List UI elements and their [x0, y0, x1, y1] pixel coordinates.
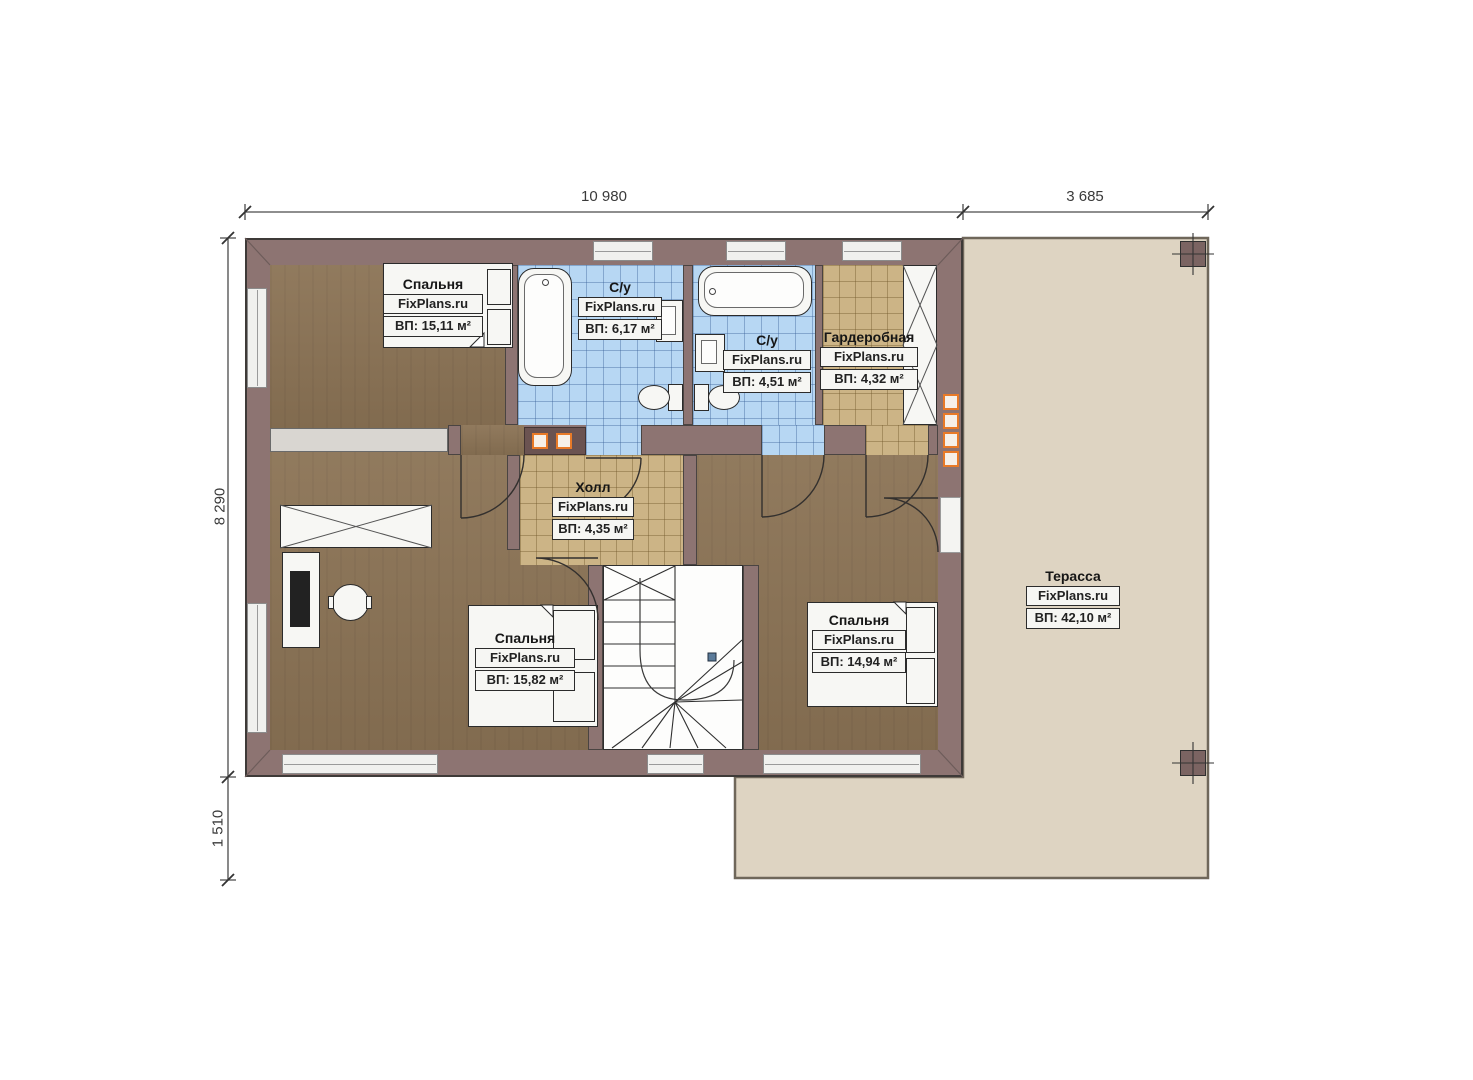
chair-armrest	[328, 596, 334, 609]
wall	[824, 425, 866, 455]
wall-light	[270, 428, 448, 452]
room-name: Гардеробная	[820, 329, 918, 345]
area-box: ВП: 15,82 м²	[475, 670, 575, 690]
wall	[641, 425, 762, 455]
terrace-column	[1180, 241, 1206, 267]
chair	[332, 584, 369, 621]
room-name: Спальня	[812, 612, 906, 628]
window	[282, 754, 438, 774]
glass-block	[943, 394, 959, 410]
brand-box: FixPlans.ru	[552, 497, 634, 517]
pillow	[906, 607, 935, 653]
brand-box: FixPlans.ru	[723, 350, 811, 370]
terrace-column	[1180, 750, 1206, 776]
area-box: ВП: 4,51 м²	[723, 372, 811, 392]
wall	[683, 265, 693, 425]
area-box: ВП: 14,94 м²	[812, 652, 906, 672]
brand-box: FixPlans.ru	[578, 297, 662, 317]
glass-block	[943, 432, 959, 448]
room-label-bathroom-large: С/у FixPlans.ru ВП: 6,17 м²	[578, 279, 662, 340]
brand-box: FixPlans.ru	[1026, 586, 1120, 606]
dimension-left-lower: 1 510	[210, 779, 227, 879]
pillow	[906, 658, 935, 704]
window	[593, 241, 653, 261]
wall	[448, 425, 461, 455]
room-label-bedroom-top-left: Спальня FixPlans.ru ВП: 15,11 м²	[383, 276, 483, 337]
room-name: Спальня	[475, 630, 575, 646]
room-label-bedroom-bottom-left: Спальня FixPlans.ru ВП: 15,82 м²	[475, 630, 575, 691]
glass-block	[943, 413, 959, 429]
wall	[928, 425, 938, 455]
toilet-tank	[694, 384, 709, 411]
sink	[695, 334, 725, 372]
room-label-bathroom-small: С/у FixPlans.ru ВП: 4,51 м²	[723, 332, 811, 393]
room-label-hall: Холл FixPlans.ru ВП: 4,35 м²	[552, 479, 634, 540]
pillow	[487, 309, 511, 345]
room-label-wardrobe: Гардеробная FixPlans.ru ВП: 4,32 м²	[820, 329, 918, 390]
window	[247, 603, 267, 733]
room-name: С/у	[723, 332, 811, 348]
area-box: ВП: 15,11 м²	[383, 316, 483, 336]
window	[842, 241, 902, 261]
brand-box: FixPlans.ru	[812, 630, 906, 650]
area-box: ВП: 4,32 м²	[820, 369, 918, 389]
room-label-bedroom-bottom-right: Спальня FixPlans.ru ВП: 14,94 м²	[812, 612, 906, 673]
dimension-top-main: 10 980	[554, 188, 654, 205]
glass-block	[532, 433, 548, 449]
glass-block	[943, 451, 959, 467]
brand-box: FixPlans.ru	[475, 648, 575, 668]
room-name: Холл	[552, 479, 634, 495]
doorway-floor	[586, 425, 641, 455]
chair-armrest	[366, 596, 372, 609]
area-box: ВП: 6,17 м²	[578, 319, 662, 339]
pillow	[487, 269, 511, 305]
dimension-top-terrace: 3 685	[1035, 188, 1135, 205]
room-label-terrace: Терасса FixPlans.ru ВП: 42,10 м²	[1026, 568, 1120, 629]
glass-block	[556, 433, 572, 449]
wall	[683, 455, 697, 565]
doorway-floor	[461, 425, 524, 455]
wall	[743, 565, 759, 750]
bathtub	[698, 266, 812, 316]
window	[647, 754, 704, 774]
area-box: ВП: 42,10 м²	[1026, 608, 1120, 628]
room-name: Терасса	[1026, 568, 1120, 584]
closet	[280, 505, 432, 548]
bathtub	[518, 268, 572, 386]
window	[726, 241, 786, 261]
window	[763, 754, 921, 774]
toilet-tank	[668, 384, 683, 411]
window	[247, 288, 267, 388]
dimension-left-main: 8 290	[212, 457, 229, 557]
doorway-floor	[866, 425, 928, 455]
desk	[282, 552, 320, 648]
room-name: С/у	[578, 279, 662, 295]
toilet-bowl	[638, 385, 670, 410]
area-box: ВП: 4,35 м²	[552, 519, 634, 539]
floor-plan-canvas: Спальня FixPlans.ru ВП: 15,11 м² С/у Fix…	[0, 0, 1473, 1080]
brand-box: FixPlans.ru	[820, 347, 918, 367]
brand-box: FixPlans.ru	[383, 294, 483, 314]
doorway-floor	[762, 425, 824, 455]
room-name: Спальня	[383, 276, 483, 292]
terrace-door-opening	[940, 497, 961, 553]
staircase	[603, 565, 743, 750]
wall	[507, 455, 520, 550]
